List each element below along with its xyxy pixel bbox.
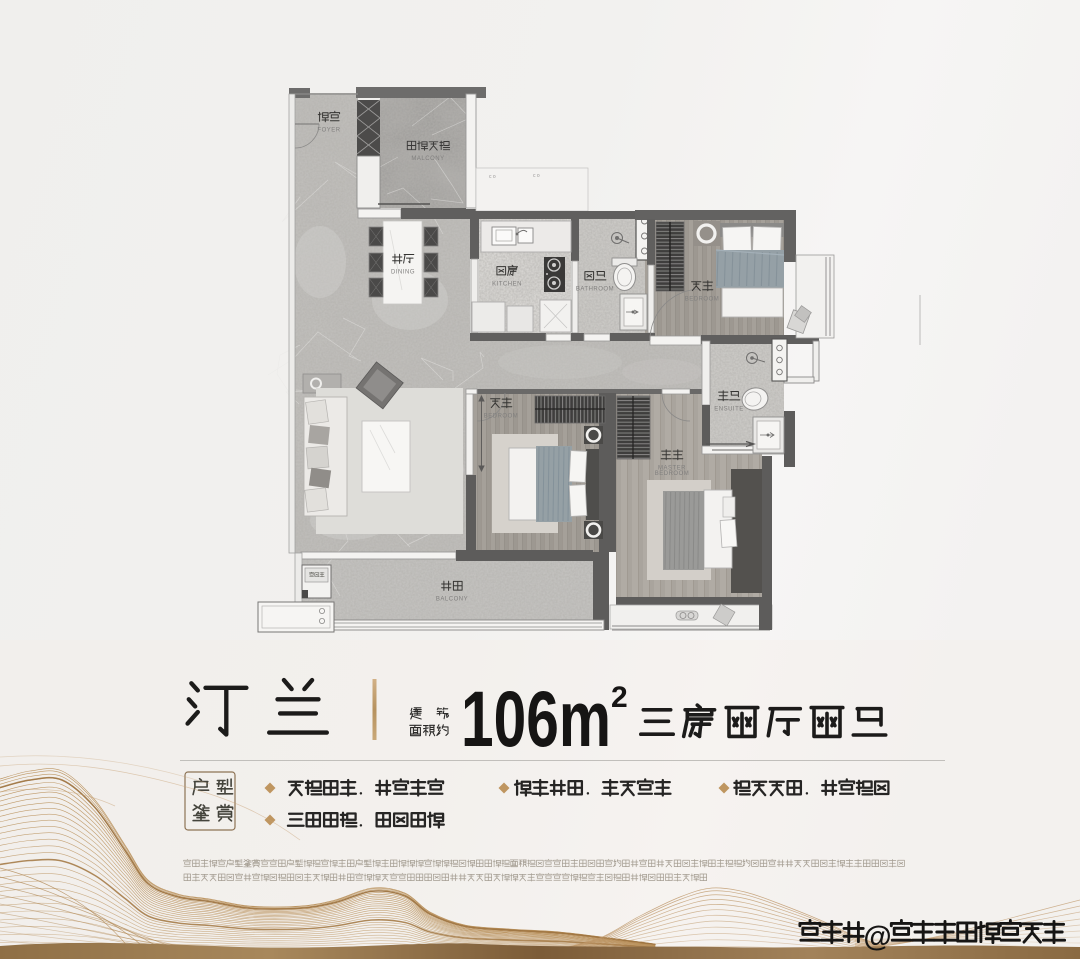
svg-text:KITCHEN: KITCHEN — [492, 282, 522, 288]
svg-text:ENSUITE: ENSUITE — [714, 407, 744, 413]
svg-text:BALCONY: BALCONY — [436, 597, 468, 603]
svg-text:@: @ — [863, 921, 891, 953]
svg-text:FOYER: FOYER — [317, 128, 340, 134]
svg-text:c o: c o — [489, 174, 496, 180]
svg-text:MALCONY: MALCONY — [411, 156, 444, 162]
svg-text:BEDROOM: BEDROOM — [685, 297, 720, 303]
svg-text:BATHROOM: BATHROOM — [576, 287, 614, 293]
svg-text:BEDROOM: BEDROOM — [484, 414, 519, 420]
svg-text:c o: c o — [533, 173, 540, 179]
svg-text:106m: 106m — [461, 674, 611, 763]
svg-text:2: 2 — [611, 681, 628, 714]
svg-text:DINING: DINING — [391, 270, 415, 276]
svg-text:BEDROOM: BEDROOM — [655, 471, 690, 477]
